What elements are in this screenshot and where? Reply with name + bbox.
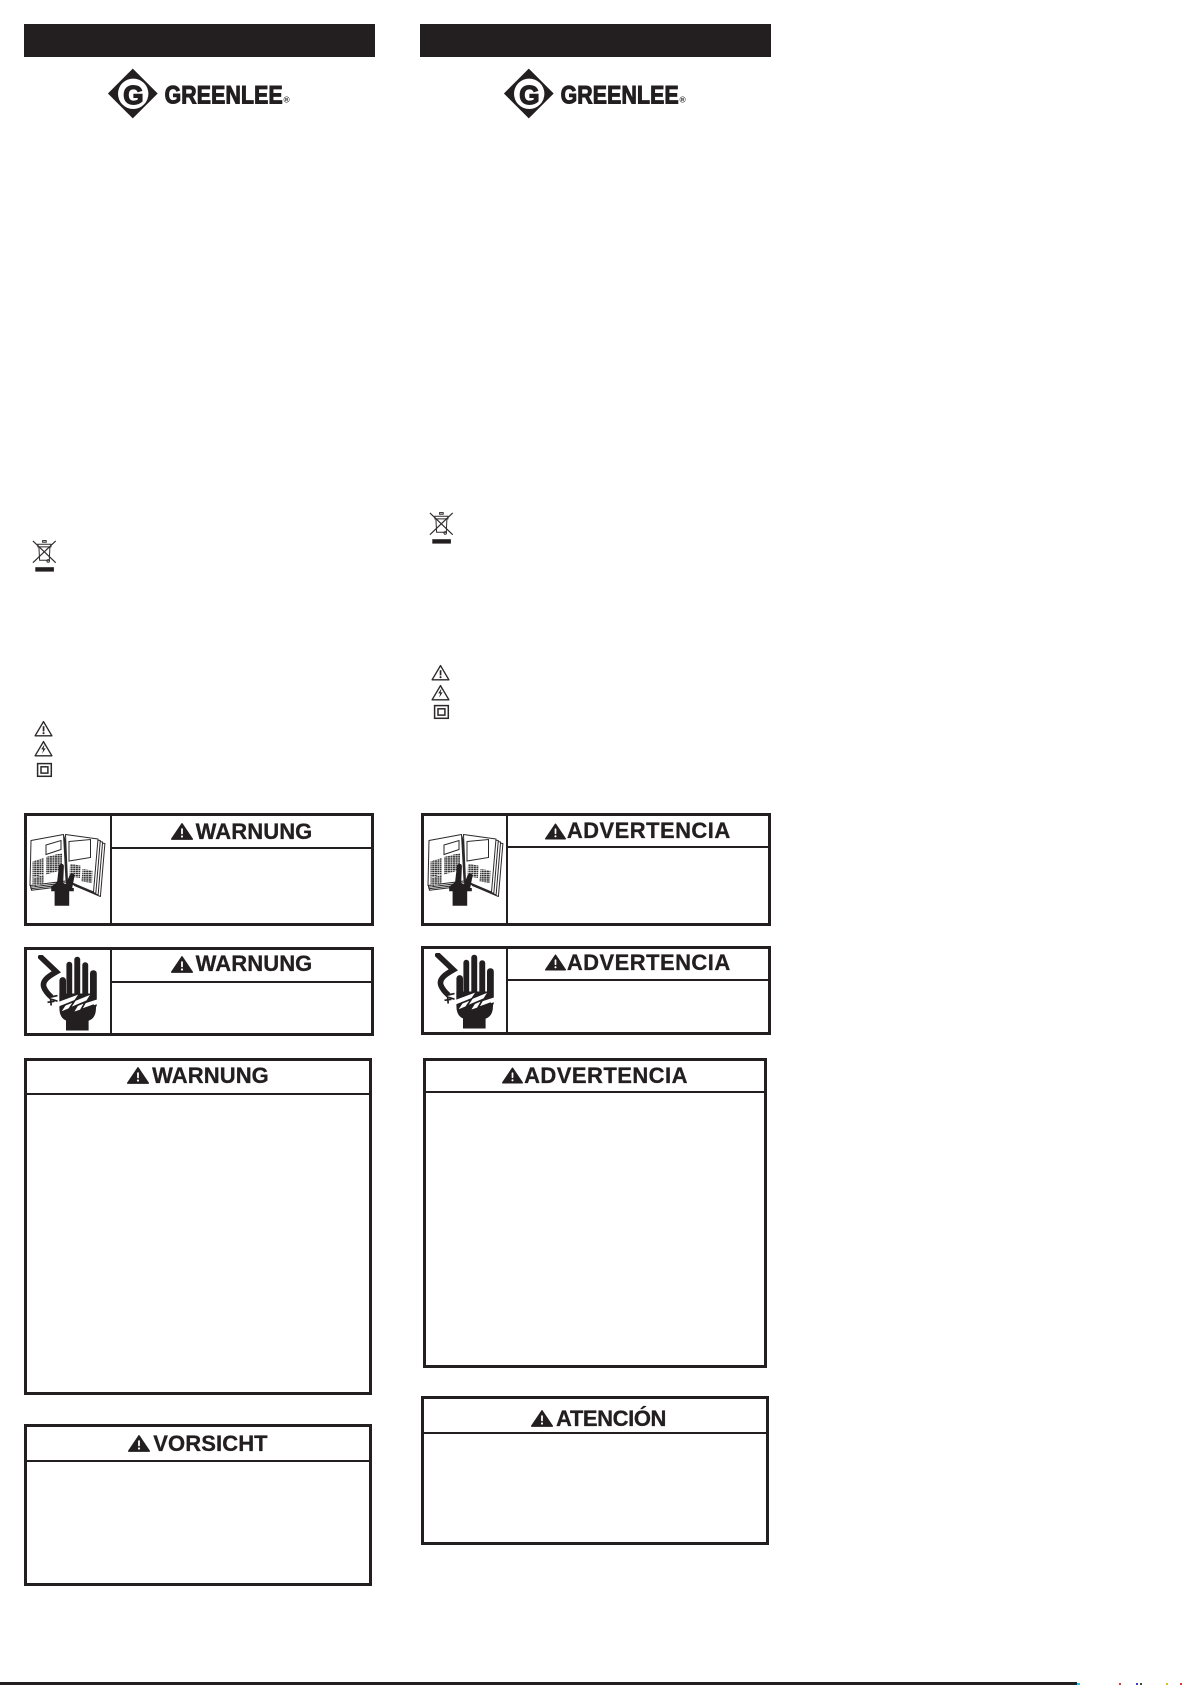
svg-text:®: ® [680, 95, 687, 105]
svg-text:®: ® [284, 95, 291, 105]
svg-text:G: G [519, 80, 539, 110]
svg-text:GREENLEE: GREENLEE [561, 81, 679, 109]
svg-text:G: G [123, 80, 143, 110]
svg-text:GREENLEE: GREENLEE [165, 81, 283, 109]
